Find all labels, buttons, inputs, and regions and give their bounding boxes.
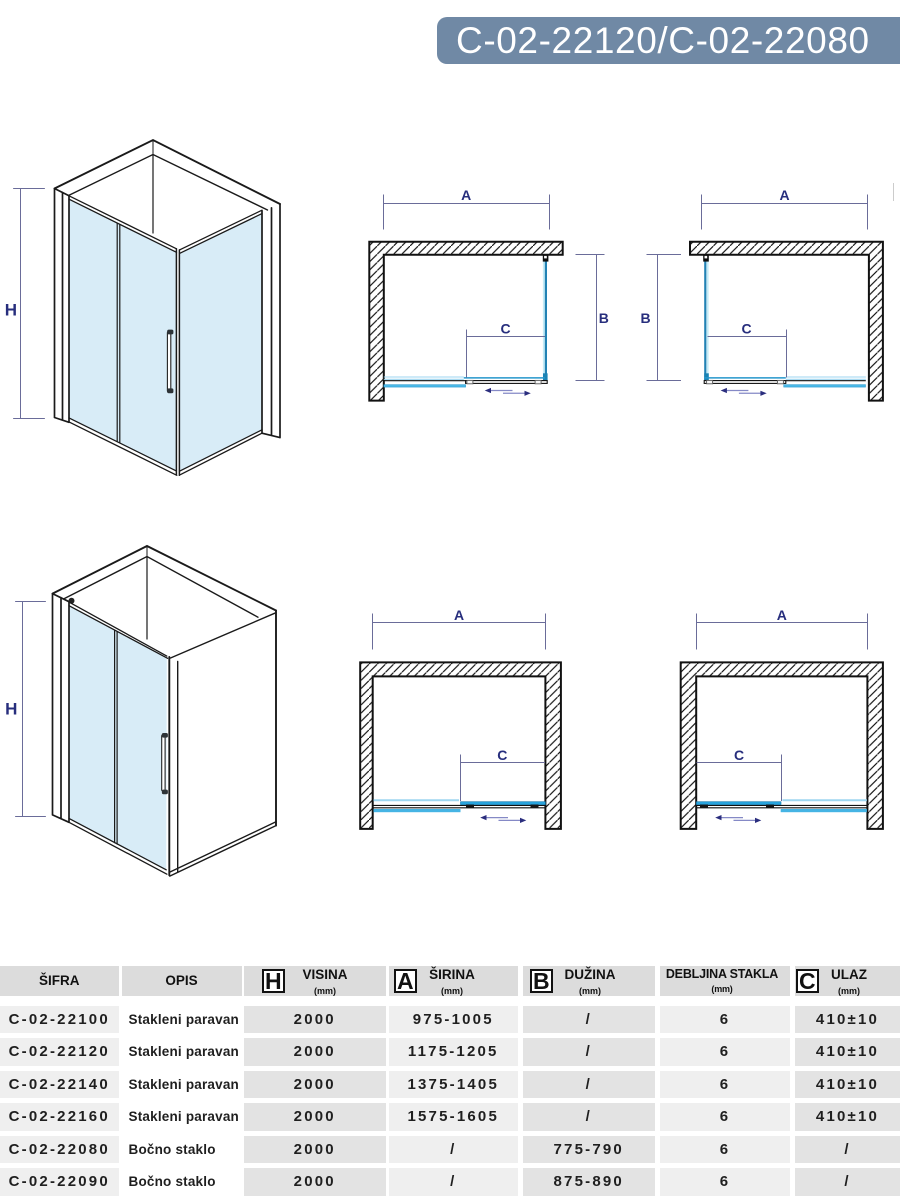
svg-text:A: A (461, 187, 471, 203)
svg-text:A: A (454, 607, 464, 623)
svg-text:B: B (599, 310, 609, 326)
svg-text:B: B (640, 310, 650, 326)
svg-text:H: H (5, 699, 17, 718)
svg-text:A: A (779, 187, 789, 203)
svg-text:C: C (741, 321, 751, 337)
svg-text:C: C (500, 321, 510, 337)
svg-text:A: A (777, 607, 787, 623)
svg-text:C: C (497, 747, 507, 763)
svg-text:C: C (734, 747, 744, 763)
svg-text:H: H (5, 301, 17, 320)
